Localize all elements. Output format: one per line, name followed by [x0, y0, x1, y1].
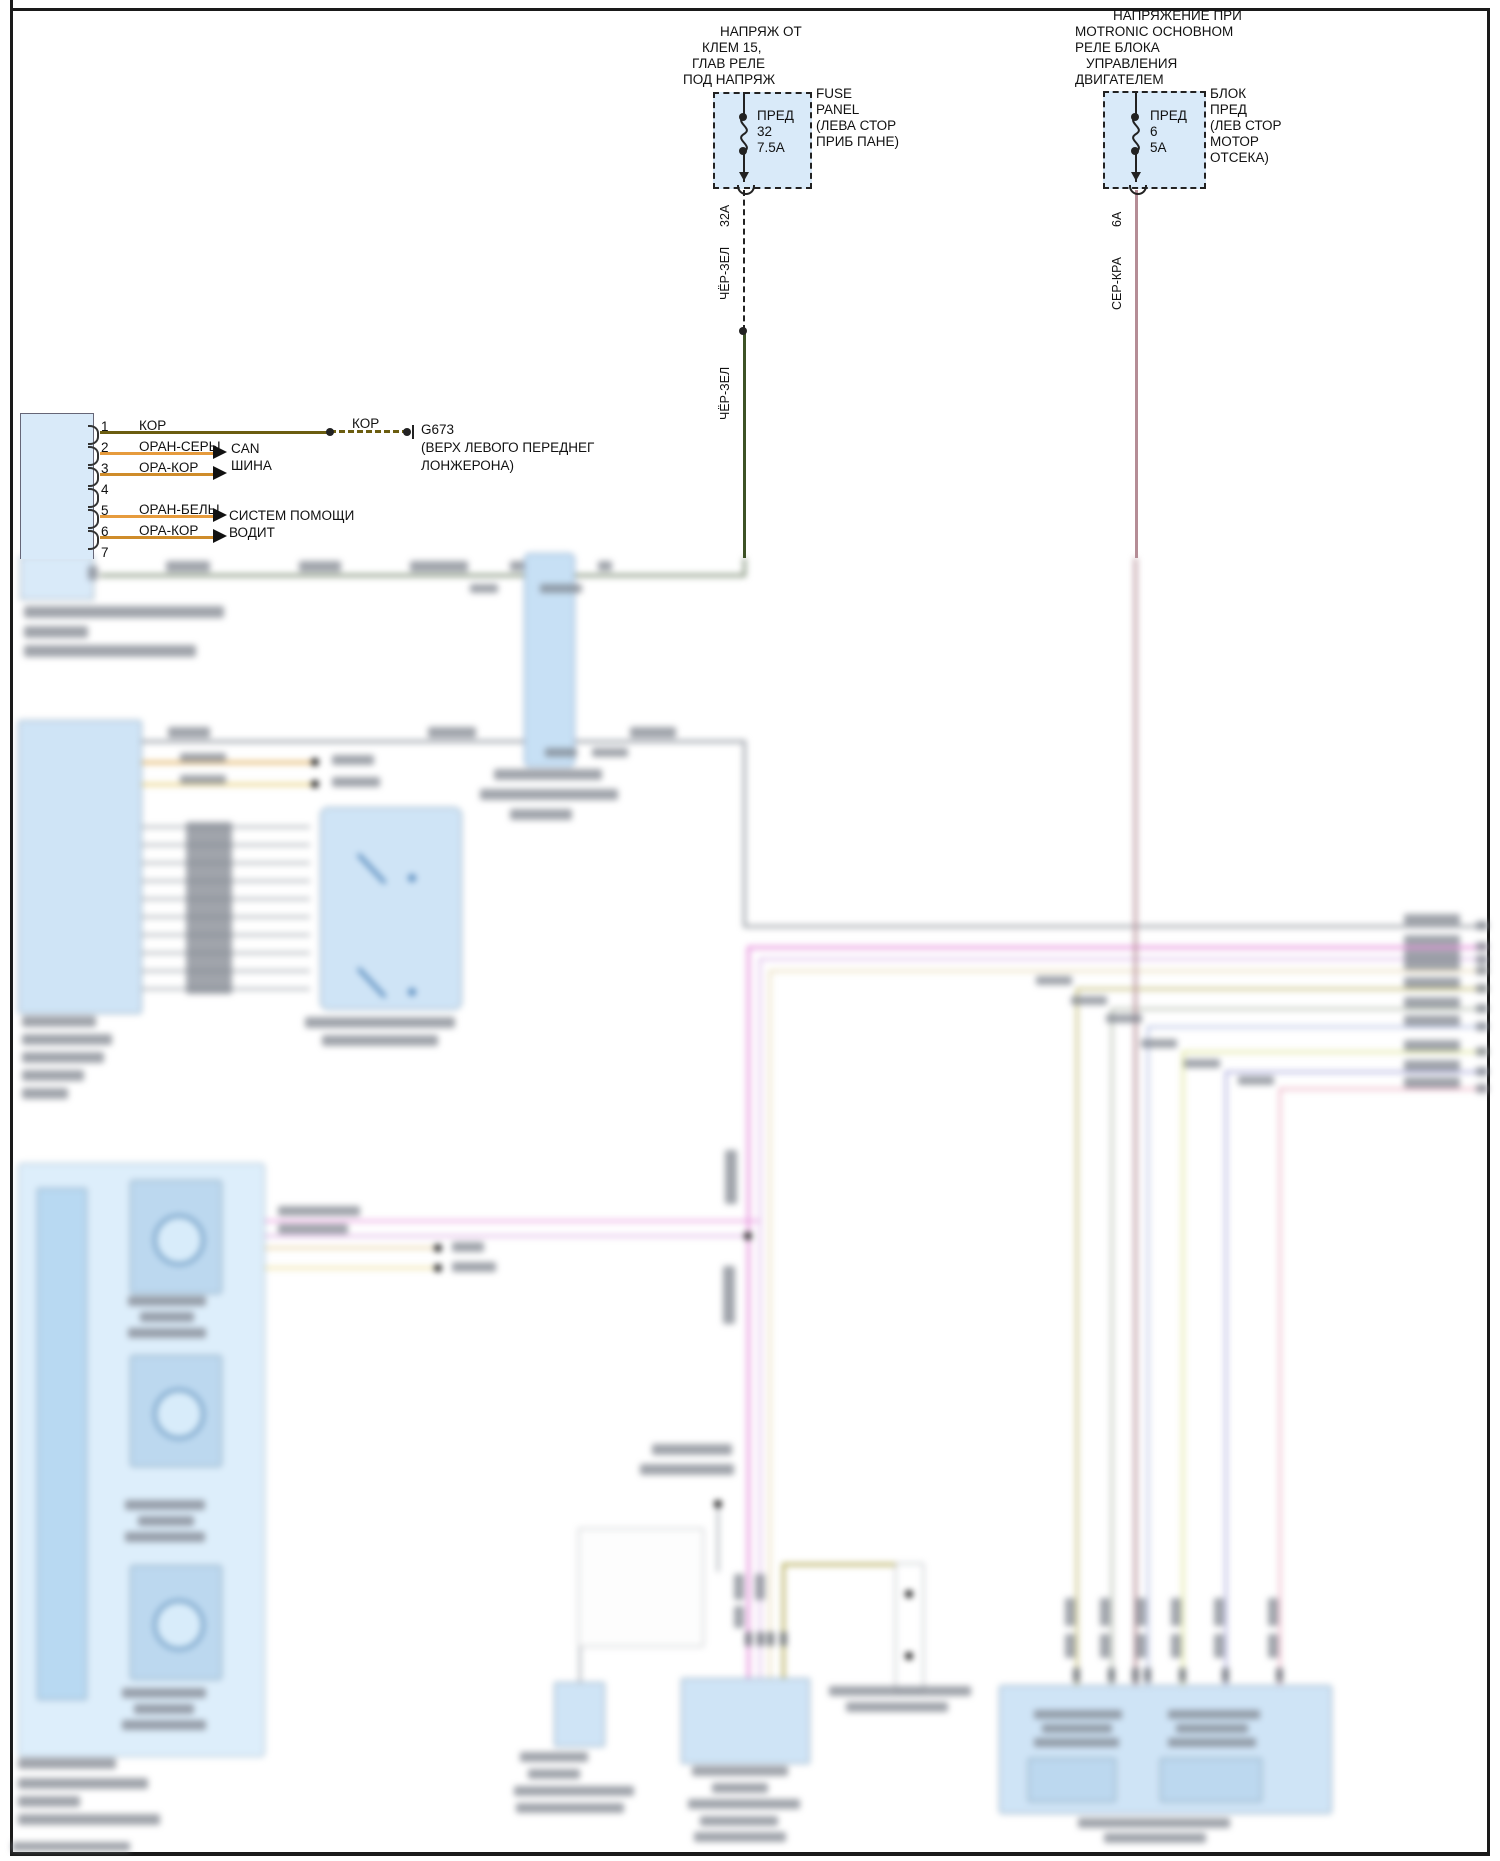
wire-vertical: [717, 1508, 719, 1572]
blurred-label: [278, 1206, 360, 1216]
blurred-label-vertical: [755, 1574, 765, 1600]
blurred-label-vertical: [734, 1606, 744, 1628]
blurred-label-vertical: [1136, 1634, 1146, 1658]
blurred-label: [88, 566, 98, 580]
component-box: [1028, 1758, 1116, 1802]
wire-vertical: [1135, 190, 1138, 558]
blurred-label: [18, 1778, 148, 1789]
wire-horizontal: [100, 536, 213, 539]
wire-amp-label-left: 32А: [718, 187, 732, 227]
blurred-label: [470, 584, 498, 593]
connector-pin: [757, 1632, 764, 1646]
motor-symbol: [153, 1388, 205, 1440]
blurred-label-vertical: [1214, 1598, 1224, 1626]
wire-horizontal: [140, 761, 315, 764]
blurred-label: [22, 1016, 96, 1027]
blurred-label: [846, 1702, 948, 1712]
wire-vertical: [743, 740, 746, 927]
blurred-label: [1034, 1710, 1122, 1719]
blurred-label: [1476, 1004, 1488, 1013]
can-bus-label-2: ШИНА: [231, 458, 272, 474]
blurred-label: [1476, 984, 1488, 993]
connector-pin: [1222, 1668, 1229, 1682]
blurred-label: [712, 1783, 768, 1793]
blurred-label: [332, 755, 374, 765]
wire-horizontal: [783, 1563, 913, 1566]
blurred-label: [1476, 1047, 1488, 1056]
blurred-label: [1034, 1738, 1119, 1747]
blurred-label: [125, 1532, 205, 1542]
arrow-right-icon: [213, 508, 227, 522]
arrow-right-icon: [213, 466, 227, 480]
blurred-label: [22, 1088, 68, 1099]
blurred-label: [305, 1017, 455, 1028]
ground-location-label-2: ЛОНЖЕРОНА): [421, 458, 514, 474]
driver-assist-label-2: ВОДИТ: [229, 525, 275, 541]
blurred-label: [1404, 1077, 1460, 1088]
component-box: [18, 720, 142, 1014]
junction-dot: [434, 1264, 442, 1272]
blurred-label: [24, 626, 88, 638]
wiring-diagram-page: НАПРЯЖ ОТ КЛЕМ 15, ГЛАВ РЕЛЕ ПОД НАПРЯЖ …: [0, 0, 1500, 1861]
blurred-label: [528, 1769, 580, 1779]
blurred-label: [18, 1814, 160, 1825]
blurred-label: [18, 1796, 80, 1807]
connector-pin: [1276, 1668, 1283, 1682]
arrow-right-icon: [213, 529, 227, 543]
wire-horizontal: [100, 515, 213, 518]
blurred-label: [1078, 1818, 1230, 1828]
blurred-label: [168, 727, 210, 738]
wire-horizontal: [1183, 1051, 1488, 1053]
wire-vertical: [743, 558, 746, 577]
switch-contact-dot: [408, 988, 416, 996]
blurred-label: [299, 561, 341, 572]
blurred-label: [186, 822, 232, 994]
blurred-label: [180, 775, 226, 784]
pin-number: 4: [101, 482, 109, 498]
junction-dot: [905, 1652, 913, 1660]
wire-horizontal: [263, 1235, 748, 1237]
wire-horizontal: [140, 740, 744, 743]
junction-dot: [739, 327, 747, 335]
blurred-label: [1168, 1738, 1256, 1747]
blurred-label: [640, 1464, 734, 1475]
component-box: [578, 1528, 704, 1647]
connector-pin: [767, 1632, 774, 1646]
wire-vertical: [1076, 988, 1078, 1685]
blurred-label: [630, 727, 676, 738]
blurred-label: [829, 1686, 971, 1696]
wire-color-label-right: СЕР-КРА: [1110, 248, 1124, 310]
wire-vertical: [1134, 558, 1137, 1685]
junction-dot: [434, 1244, 442, 1252]
blurred-label-vertical: [723, 1266, 735, 1324]
wire-horizontal: [263, 1220, 760, 1222]
blurred-label-vertical: [1171, 1634, 1181, 1658]
blurred-label: [520, 1752, 588, 1762]
blurred-label-vertical: [1171, 1598, 1181, 1626]
fuse-right-number: 6: [1150, 124, 1158, 140]
blurred-label: [22, 1034, 112, 1045]
blurred-label: [592, 748, 628, 757]
wire-vertical: [1111, 1008, 1113, 1685]
component-box: [681, 1678, 810, 1764]
wire-horizontal: [744, 925, 1488, 928]
blurred-label: [428, 727, 476, 738]
blurred-label-vertical: [725, 1150, 737, 1204]
blurred-label: [22, 1070, 84, 1081]
wire-dashed-vertical: [743, 190, 745, 331]
blurred-label: [1404, 1040, 1460, 1051]
blurred-label: [18, 1758, 116, 1769]
blurred-label: [122, 1720, 206, 1730]
blurred-label: [1476, 942, 1488, 951]
fuse-left-amps: 7.5А: [757, 140, 785, 156]
wire-dashed-horizontal: [330, 430, 408, 433]
blurred-label: [140, 1312, 194, 1322]
blurred-label: [1106, 1014, 1142, 1023]
wire-vertical: [1279, 1088, 1281, 1685]
motor-symbol: [153, 1214, 205, 1266]
junction-dot: [744, 1232, 752, 1240]
connector-pin: [1108, 1668, 1115, 1682]
component-box: [320, 807, 462, 1010]
blurred-label: [180, 753, 226, 762]
blurred-label: [652, 1444, 732, 1455]
blurred-label: [22, 1052, 104, 1063]
component-box: [895, 1563, 924, 1692]
blurred-label: [1476, 1067, 1488, 1076]
blurred-label: [514, 1786, 634, 1796]
wire-vertical: [769, 970, 771, 1678]
switch-contact-dot: [408, 874, 416, 882]
blurred-label: [1476, 1084, 1488, 1093]
blurred-label: [128, 1296, 206, 1306]
blurred-label: [700, 1816, 778, 1826]
wire-horizontal: [263, 1267, 438, 1269]
connector-pin: [1144, 1668, 1151, 1682]
wire-vertical: [1147, 1026, 1149, 1685]
blurred-label: [480, 789, 618, 800]
component-box: [554, 1682, 605, 1747]
wire-horizontal: [100, 452, 213, 455]
blurred-label-vertical: [1268, 1598, 1278, 1626]
blurred-label: [692, 1766, 788, 1776]
wire-vertical: [747, 946, 750, 1678]
junction-dot: [1131, 147, 1139, 155]
driver-assist-label: СИСТЕМ ПОМОЩИ: [229, 508, 354, 524]
blurred-label-vertical: [1065, 1634, 1075, 1658]
connector-pin: [745, 1632, 752, 1646]
blurred-label: [1476, 1022, 1488, 1031]
blurred-label: [122, 1688, 206, 1698]
blurred-label-vertical: [1214, 1634, 1224, 1658]
wire-vertical: [782, 1563, 785, 1678]
pin-number: 7: [101, 545, 109, 561]
can-bus-label: CAN: [231, 441, 260, 457]
blurred-label: [1071, 996, 1107, 1005]
blurred-label-vertical: [1100, 1634, 1110, 1658]
wire-horizontal: [1148, 1026, 1488, 1028]
motor-symbol: [153, 1599, 205, 1651]
wire-vertical: [412, 425, 414, 439]
blurred-label: [1184, 1059, 1220, 1068]
junction-dot: [739, 113, 747, 121]
blurred-label: [1036, 976, 1072, 985]
wire-horizontal: [100, 431, 330, 434]
blurred-label: [1238, 1076, 1274, 1085]
blurred-label: [12, 1842, 130, 1851]
blurred-label: [24, 645, 196, 657]
connector-pin: [1132, 1668, 1139, 1682]
blurred-label: [1176, 1724, 1248, 1733]
wire-vertical: [1225, 1071, 1227, 1685]
blurred-label: [1476, 955, 1488, 964]
arrow-right-icon: [213, 445, 227, 459]
blurred-label: [516, 1803, 624, 1813]
blurred-label: [1476, 921, 1488, 930]
ground-location-label: (ВЕРХ ЛЕВОГО ПЕРЕДНЕГ: [421, 440, 594, 456]
connector-pin: [1179, 1668, 1186, 1682]
fuse-left-number: 32: [757, 124, 772, 140]
wire-color-label-left-lower: ЧЁР-ЗЕЛ: [718, 358, 732, 420]
blurred-label: [24, 606, 224, 618]
wire-horizontal: [748, 946, 1488, 949]
wire-horizontal: [770, 970, 1488, 972]
wire-amp-label-right: 6А: [1110, 187, 1124, 227]
component-box: [37, 1188, 87, 1700]
wire-horizontal: [100, 574, 745, 577]
junction-dot: [714, 1500, 722, 1508]
fuse-left-name: ПРЕД: [757, 108, 794, 124]
blurred-label: [1404, 959, 1460, 970]
left-connector-box: [20, 413, 94, 559]
junction-dot: [311, 758, 319, 766]
blurred-label: [134, 1704, 194, 1714]
blurred-label-vertical: [1136, 1598, 1146, 1626]
wire-vertical: [579, 1645, 581, 1682]
blurred-label: [1404, 1060, 1460, 1071]
junction-dot: [739, 147, 747, 155]
blurred-label: [1404, 977, 1460, 988]
blurred-label-vertical: [1065, 1598, 1075, 1626]
blurred-label-vertical: [734, 1574, 744, 1600]
blurred-label: [410, 561, 468, 572]
wire-vertical: [743, 331, 746, 558]
blurred-label: [128, 1328, 206, 1338]
blurred-label: [510, 561, 524, 571]
blurred-label: [1404, 997, 1460, 1008]
blurred-diagram-region: [0, 0, 1500, 1861]
blurred-label: [1168, 1710, 1260, 1719]
blurred-label: [540, 584, 582, 593]
wire-vertical: [1182, 1051, 1184, 1685]
blurred-label: [1404, 1015, 1460, 1026]
junction-dot: [905, 1590, 913, 1598]
component-box: [20, 556, 94, 600]
wire-horizontal: [760, 958, 1488, 960]
blurred-label: [332, 777, 380, 787]
blurred-label: [125, 1500, 205, 1510]
blurred-label-vertical: [1100, 1598, 1110, 1626]
blurred-label: [1104, 1833, 1206, 1843]
arrow-down-icon: [1131, 172, 1141, 181]
wire-horizontal: [1112, 1008, 1488, 1010]
junction-dot: [1131, 113, 1139, 121]
blurred-label: [1042, 1724, 1112, 1733]
blurred-label: [1476, 966, 1488, 975]
wire-horizontal: [263, 1247, 438, 1249]
wire-horizontal: [1077, 988, 1488, 990]
blurred-label: [545, 748, 577, 757]
blurred-label: [452, 1262, 496, 1272]
blurred-label: [1141, 1039, 1177, 1048]
junction-dot: [403, 428, 411, 436]
blurred-label: [138, 1516, 194, 1526]
blurred-label: [452, 1242, 484, 1252]
arrow-down-icon: [739, 172, 749, 181]
wire-horizontal: [1280, 1088, 1488, 1090]
blurred-label: [166, 561, 210, 572]
junction-dot: [311, 780, 319, 788]
blurred-label: [494, 769, 602, 780]
blurred-label-vertical: [1268, 1634, 1278, 1658]
wire-horizontal: [100, 473, 213, 476]
connector-pin: [780, 1632, 787, 1646]
blurred-label: [510, 809, 572, 820]
blurred-label: [688, 1799, 800, 1809]
blurred-label: [1404, 935, 1460, 946]
blurred-label: [694, 1832, 786, 1842]
wire-color-label-left-upper: ЧЁР-ЗЕЛ: [718, 238, 732, 300]
blurred-label: [598, 561, 612, 571]
fuse-right-name: ПРЕД: [1150, 108, 1187, 124]
wire-horizontal: [140, 783, 315, 786]
junction-dot: [326, 428, 334, 436]
wire-horizontal: [1226, 1071, 1488, 1073]
wire-vertical: [759, 958, 761, 1678]
blurred-label: [322, 1035, 438, 1046]
blurred-label: [1404, 914, 1460, 925]
component-box: [1160, 1758, 1262, 1802]
fuse-right-amps: 5А: [1150, 140, 1167, 156]
connector-pin: [1073, 1668, 1080, 1682]
blurred-label: [278, 1224, 348, 1234]
ground-id-label: G673: [421, 422, 454, 438]
